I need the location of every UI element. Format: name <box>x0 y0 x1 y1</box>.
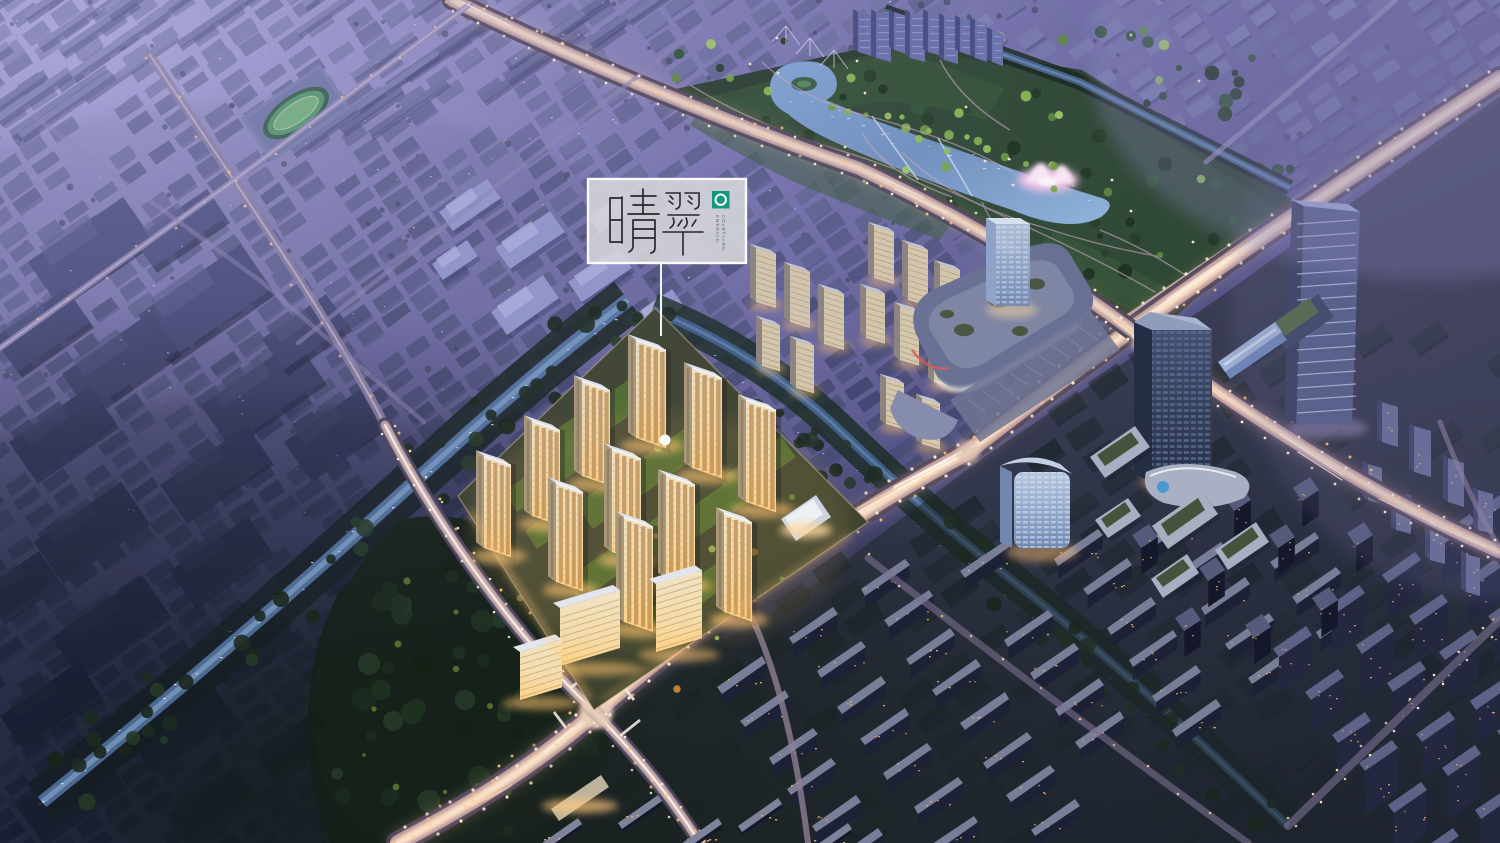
svg-text:EMERALD: EMERALD <box>715 215 720 243</box>
svg-text:COURTYARD: COURTYARD <box>721 215 726 251</box>
